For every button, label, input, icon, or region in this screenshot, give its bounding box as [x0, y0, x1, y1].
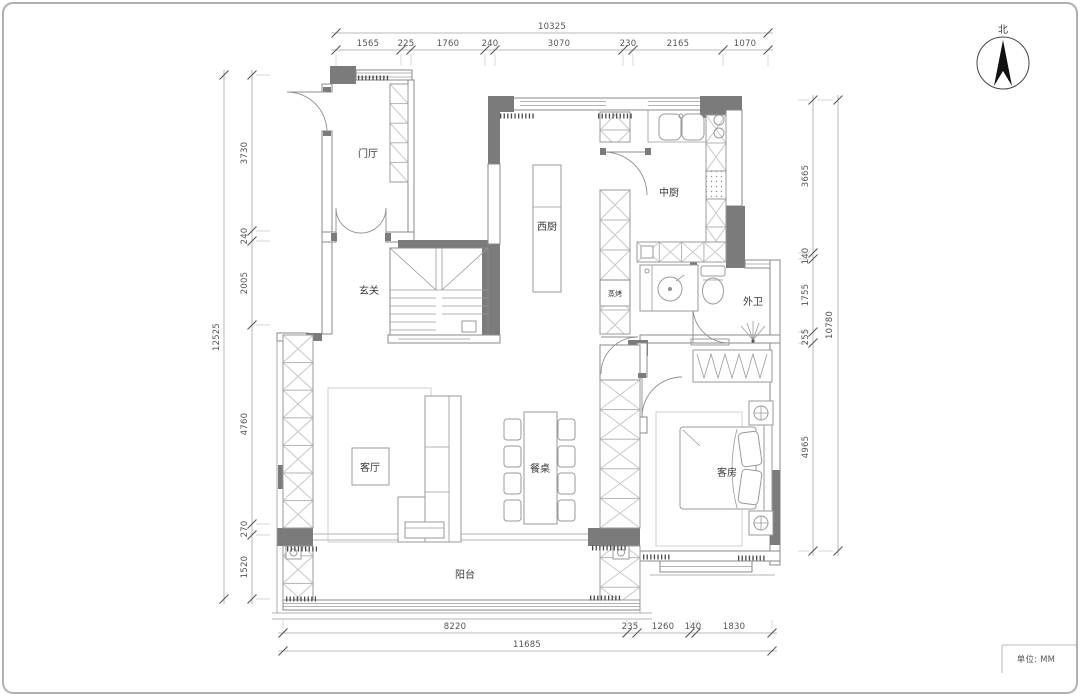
dim-right-seg-3: 255 [801, 329, 811, 346]
walls [272, 66, 780, 619]
dim-right-total: 10780 [825, 311, 835, 339]
dim-bottom-seg-1: 235 [622, 622, 639, 632]
dimension-chain-right: 10780 3665 140 1755 255 4965 [798, 95, 843, 556]
dim-top-seg-2: 1760 [437, 39, 459, 49]
dim-right-seg-1: 140 [801, 248, 811, 265]
dim-bottom-seg-2: 1260 [652, 622, 674, 632]
dim-left-seg-4: 270 [240, 521, 250, 538]
kitchen-door [600, 148, 651, 195]
dim-left-seg-0: 3730 [240, 142, 250, 164]
middle-cabinet-column-lower [600, 345, 640, 380]
label-guest-bedroom: 客房 [717, 466, 737, 479]
dim-top-total: 10325 [538, 22, 566, 32]
nightstand-south [749, 511, 773, 535]
nightstand-north [749, 401, 773, 425]
dim-top-seg-1: 225 [398, 39, 415, 49]
label-chinese-kitchen: 中厨 [659, 186, 679, 199]
dim-bottom-total: 11685 [513, 640, 541, 650]
label-steam-oven: 蒸烤 [608, 289, 622, 298]
dim-left-seg-1: 240 [240, 228, 250, 245]
north-needle-icon [994, 40, 1012, 86]
label-west-kitchen: 西厨 [537, 221, 557, 233]
dim-bottom-seg-4: 1830 [723, 622, 745, 632]
label-living-room: 客厅 [360, 461, 380, 474]
dim-bottom-seg-3: 140 [685, 622, 702, 632]
label-balcony: 阳台 [455, 568, 475, 581]
wash-basin [640, 265, 698, 311]
north-arrow: 北 [977, 24, 1029, 89]
label-vestibule: 玄关 [359, 284, 379, 297]
guest-room-door [638, 373, 682, 417]
entry-closet [390, 84, 408, 182]
middle-cabinet-column-upper [600, 112, 630, 142]
wardrobe [693, 350, 772, 382]
furniture [328, 350, 773, 546]
label-dining-table: 餐桌 [530, 462, 550, 475]
dimension-chain-bottom: 8220 235 1260 140 1830 11685 [278, 620, 777, 656]
vestibule-double-door [331, 208, 391, 241]
dim-left-total: 12525 [212, 323, 222, 351]
dim-top-seg-5: 230 [620, 39, 637, 49]
dim-left-seg-5: 1520 [240, 556, 250, 578]
entry-door [287, 87, 331, 136]
dim-left-seg-3: 4760 [240, 413, 250, 435]
dim-right-seg-4: 4965 [801, 436, 811, 458]
label-entry-hall: 门厅 [358, 147, 378, 160]
label-guest-bathroom: 外卫 [743, 296, 763, 308]
dim-top-seg-3: 240 [482, 39, 499, 49]
bathroom-door [691, 307, 729, 345]
sofa [398, 396, 461, 542]
dim-right-seg-0: 3665 [801, 165, 811, 187]
dim-bottom-seg-0: 8220 [444, 622, 466, 632]
living-west-cabinet-strip [283, 335, 313, 528]
dim-top-seg-6: 2165 [667, 39, 689, 49]
dim-top-seg-0: 1565 [357, 39, 379, 49]
dimension-chain-left: 12525 3730 240 2005 4760 270 1520 [212, 70, 270, 604]
toilet [701, 266, 725, 304]
north-label: 北 [998, 24, 1008, 36]
dimension-chain-top: 10325 1565 225 1760 240 3070 230 2165 10… [331, 22, 773, 66]
staircase [390, 248, 488, 335]
kitchen-sink [648, 110, 706, 142]
kitchen-appliance [641, 246, 653, 258]
units-label: 单位: MM [1017, 654, 1055, 665]
dim-left-seg-2: 2005 [240, 272, 250, 294]
dim-top-seg-4: 3070 [548, 39, 570, 49]
floor-plan-drawing: 单位: MM 北 10325 1565 225 1760 240 3070 23… [0, 0, 1080, 696]
dim-top-seg-7: 1070 [734, 39, 756, 49]
bed [680, 423, 772, 511]
dim-right-seg-2: 1755 [801, 284, 811, 306]
